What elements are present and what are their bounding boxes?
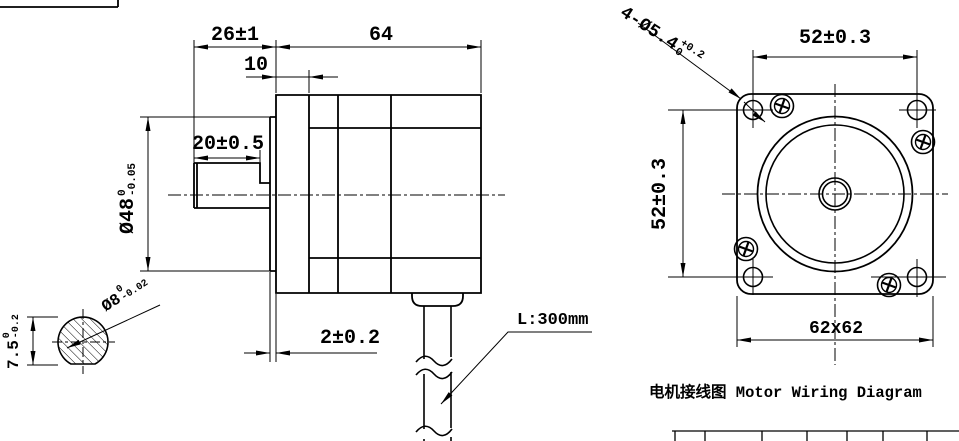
dim-shaft-length-label: 20±0.5 — [190, 135, 266, 155]
screw-bottom-left — [735, 238, 758, 261]
motor-drawing-sheet: 26±1 64 10 20±0.5 Ø48 0 -0.05 2±0.2 L:30… — [0, 0, 959, 441]
motor-body-outline — [194, 95, 481, 293]
front-view-arrowheads — [681, 55, 934, 343]
strain-relief — [412, 293, 463, 306]
side-view-arrowheads — [146, 45, 482, 356]
wiring-diagram-title: 电机接线图 Motor Wiring Diagram — [649, 383, 922, 403]
dim-front-cap-label: 10 — [238, 56, 274, 76]
dim-flat-height-label: 7.5 0 -0.2 — [4, 314, 24, 369]
dim-hole-spacing-horizontal-label: 52±0.3 — [785, 29, 885, 49]
front-view — [638, 23, 948, 365]
screw-top-left — [771, 95, 794, 118]
dim-body-length-label: 64 — [346, 26, 416, 46]
shaft-cross-section-detail — [27, 305, 160, 374]
cable — [412, 293, 463, 441]
dim-shaft-to-flange-label: 26±1 — [200, 26, 270, 46]
dim-boss-height-label: 2±0.2 — [312, 329, 388, 349]
cable-length-leader — [441, 332, 592, 404]
sheet-frame-corner — [0, 0, 118, 7]
drawing-canvas — [0, 0, 959, 441]
dim-hole-spacing-vertical-label: 52±0.3 — [651, 158, 671, 230]
dim-boss-diameter-label: Ø48 0 -0.05 — [119, 163, 139, 234]
side-view-dimension-lines — [140, 40, 481, 362]
dim-face-size-label: 62x62 — [800, 319, 872, 339]
screw-top-right — [912, 131, 935, 154]
wiring-table — [672, 431, 959, 441]
side-view — [140, 40, 592, 441]
cable-length-label: L:300mm — [517, 311, 588, 331]
